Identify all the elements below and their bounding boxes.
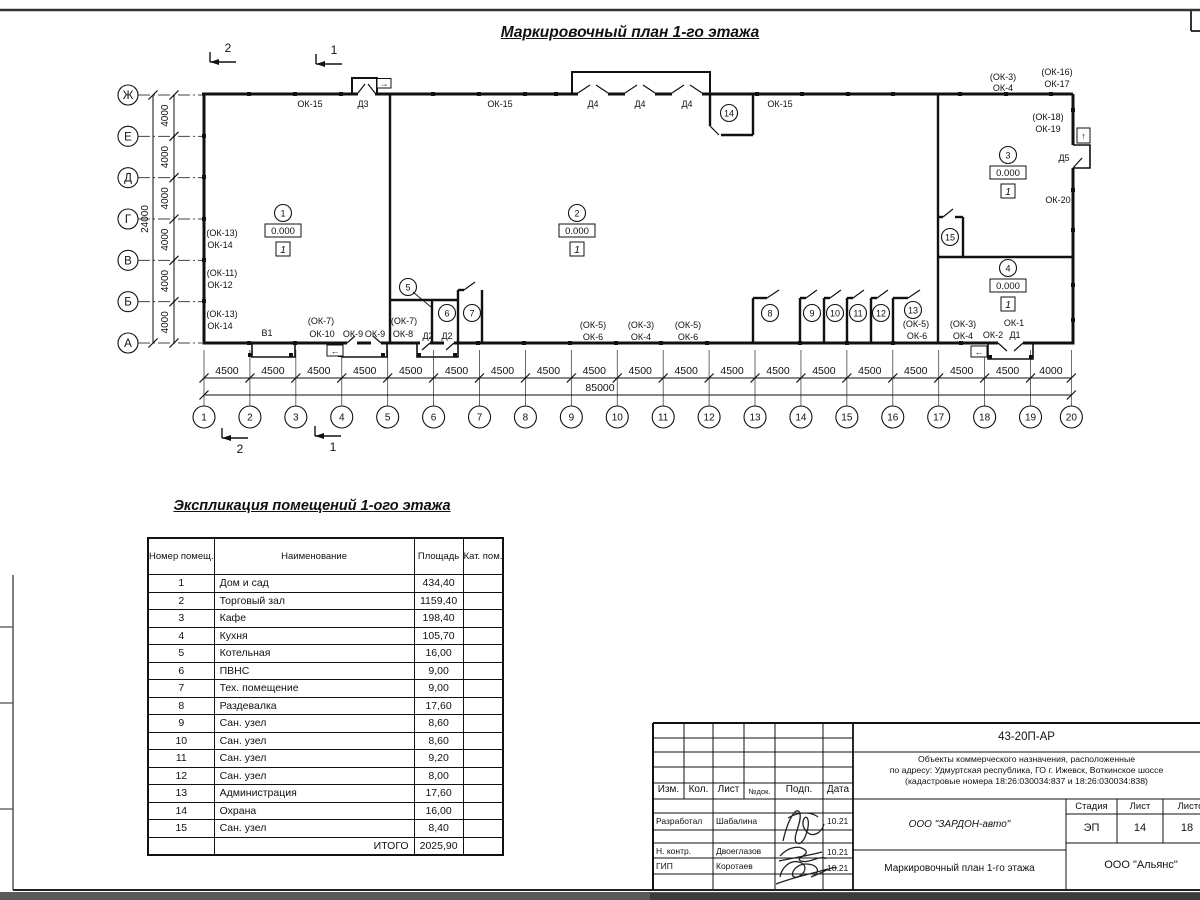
wall-label: Д4 [587, 99, 598, 109]
finish-type: 1 [1005, 186, 1011, 198]
stamp-col-list: Лист [713, 784, 744, 795]
door-leaf [358, 84, 365, 93]
axis-letter: Ж [123, 90, 134, 102]
door-leaf [596, 85, 608, 93]
column-number: 20 [1066, 413, 1078, 424]
stamp-sheet-label: Лист [1117, 801, 1163, 812]
axis-gap-dim: 4000 [160, 187, 171, 210]
window-tick [1049, 92, 1053, 96]
column-number: 6 [431, 413, 437, 424]
section-arrow [222, 435, 231, 441]
column-gap-dim: 4500 [858, 365, 882, 377]
axis-gap-dim: 4000 [160, 269, 171, 292]
wall-label: (ОК-16) [1041, 67, 1072, 77]
column-number: 11 [658, 413, 669, 424]
stamp-col-izm: Изм. [653, 784, 684, 795]
wall-label: ОК-19 [1035, 124, 1060, 134]
door-leaf [672, 85, 684, 93]
finish-type: 1 [574, 244, 580, 256]
door-leaf [368, 84, 375, 93]
finish-type: 1 [1005, 299, 1011, 311]
wall-label: ОК-8 [393, 329, 413, 339]
axis-gap-dim: 4000 [160, 104, 171, 127]
table-row: 8Раздевалка17,60 [148, 697, 503, 715]
stamp-doc-code: 43-20П-АР [853, 731, 1200, 743]
elevation-value: 0.000 [996, 168, 1020, 179]
room-number: 3 [1005, 150, 1010, 160]
stamp-sheet-value: 14 [1117, 822, 1163, 834]
room-number: 5 [405, 282, 410, 292]
door-leaf [578, 85, 590, 93]
wall-label: (ОК-5) [903, 319, 929, 329]
column-number: 12 [704, 413, 716, 424]
table-total-row: ИТОГО2025,90 [148, 837, 503, 855]
room-number: 10 [830, 308, 840, 318]
window-tick [846, 92, 850, 96]
stamp-date-gip: 10.21 [827, 863, 853, 873]
wall-label: ОК-14 [207, 321, 232, 331]
stamp-role-ncontr: Н. контр. [656, 846, 712, 856]
exit-arrow-left-icon: ← [975, 347, 984, 357]
stamp-col-ndok: №док. [744, 787, 775, 796]
signature-ncontr [779, 847, 826, 861]
window-tick [1029, 355, 1033, 359]
window-tick [1071, 108, 1075, 112]
table-row: 15Сан. узел8,40 [148, 820, 503, 838]
table-row: 3Кафе198,40 [148, 610, 503, 628]
wall-label: Д4 [681, 99, 692, 109]
window-tick [755, 92, 759, 96]
stamp-stage-value: ЭП [1066, 822, 1117, 834]
door-leaf [710, 126, 719, 135]
stamp-role-gip: ГИП [656, 861, 712, 871]
column-gap-dim: 4000 [1039, 365, 1063, 377]
wall-label: (ОК-5) [675, 320, 701, 330]
wall-label: (ОК-3) [990, 72, 1016, 82]
explication-table: Номер помещ. Наименование Площадь Кат. п… [147, 537, 504, 856]
column-total-dim: 85000 [585, 382, 614, 394]
window-tick [202, 299, 206, 303]
wall-label: Д2 [441, 331, 452, 341]
column-gap-dim: 4500 [537, 365, 561, 377]
wall-label: ОК-20 [1045, 195, 1070, 205]
stamp-date-ncontr: 10.21 [827, 847, 853, 857]
column-number: 8 [523, 413, 529, 424]
section-number: 1 [331, 43, 338, 57]
wall-label: В1 [261, 328, 272, 338]
wall-label: (ОК-3) [628, 320, 654, 330]
column-gap-dim: 4500 [261, 365, 285, 377]
stamp-name-developer: Шабалина [716, 816, 774, 826]
column-number: 4 [339, 413, 345, 424]
drawing-sheet: ЖЕДГВБА400040004000400040004000240001234… [0, 0, 1200, 900]
col-header-number: Номер помещ. [148, 538, 214, 575]
stamp-name-ncontr: Двоеглазов [716, 846, 774, 856]
column-number: 2 [247, 413, 253, 424]
window-tick [453, 353, 457, 357]
wall-label: (ОК-3) [950, 319, 976, 329]
column-gap-dim: 4500 [950, 365, 974, 377]
section-number: 1 [330, 440, 337, 454]
door-leaf [806, 290, 817, 298]
window-tick [339, 92, 343, 96]
column-number: 14 [795, 413, 807, 424]
column-gap-dim: 4500 [307, 365, 331, 377]
column-number: 13 [749, 413, 761, 424]
window-tick [988, 355, 992, 359]
elevation-value: 0.000 [565, 226, 589, 237]
wall-label: ОК-9 [343, 329, 363, 339]
stamp-org-customer: ООО "Альянс" [1066, 859, 1200, 871]
door-leaf [877, 290, 888, 298]
axis-letter: Б [124, 297, 132, 309]
stamp-address-line2: по адресу: Удмуртская республика, ГО г. … [853, 765, 1200, 775]
window-tick [891, 341, 895, 345]
wall-label: Д4 [634, 99, 645, 109]
axis-letter: А [124, 338, 132, 350]
table-row: 13Администрация17,60 [148, 785, 503, 803]
stamp-role-developer: Разработал [656, 816, 712, 826]
section-number: 2 [237, 442, 244, 456]
wall-label: Д1 [1009, 330, 1020, 340]
col-header-category: Кат. пом. [463, 538, 503, 575]
wall-label: ОК-12 [207, 280, 232, 290]
column-number: 15 [841, 413, 853, 424]
window-tick [293, 92, 297, 96]
stamp-col-data: Дата [823, 784, 853, 795]
wall-label: ОК-9 [365, 329, 385, 339]
section-arrow [315, 433, 324, 439]
wall-label: ОК-1 [1004, 318, 1024, 328]
column-gap-dim: 4500 [996, 365, 1020, 377]
door-leaf [446, 343, 454, 350]
door-leaf [1014, 343, 1023, 351]
section-arrow [316, 61, 325, 67]
window-tick [659, 341, 663, 345]
table-row: 11Сан. узел9,20 [148, 750, 503, 768]
window-tick [568, 341, 572, 345]
table-row: 6ПВНС9,00 [148, 662, 503, 680]
axis-letter: Г [125, 214, 132, 226]
door-leaf [643, 85, 655, 93]
explication-title: Экспликация помещений 1-ого этажа [172, 498, 452, 514]
room-number: 8 [767, 308, 772, 318]
plan-title: Маркировочный план 1-го этажа [440, 24, 820, 42]
wall-label: ОК-17 [1044, 79, 1069, 89]
col-header-name: Наименование [214, 538, 414, 575]
axis-letter: В [124, 255, 132, 267]
window-tick [476, 341, 480, 345]
exit-arrow-left-icon: ← [331, 346, 340, 356]
porch-d2 [417, 344, 458, 357]
window-tick [845, 341, 849, 345]
column-gap-dim: 4500 [445, 365, 469, 377]
door-leaf [830, 290, 841, 298]
wall-label: ОК-4 [631, 332, 651, 342]
window-tick [959, 341, 963, 345]
column-number: 17 [933, 413, 945, 424]
window-tick [523, 92, 527, 96]
exit-arrow-up-icon: ↑ [1081, 131, 1086, 141]
wall-label: ОК-6 [907, 331, 927, 341]
room-number: 6 [444, 308, 449, 318]
room-number: 1 [280, 208, 285, 218]
window-tick [554, 92, 558, 96]
window-tick [522, 341, 526, 345]
column-gap-dim: 4500 [629, 365, 653, 377]
window-tick [477, 92, 481, 96]
door-leaf [943, 209, 953, 217]
window-tick [202, 134, 206, 138]
window-tick [202, 217, 206, 221]
column-number: 5 [385, 413, 391, 424]
window-tick [800, 92, 804, 96]
wall-label: ОК-15 [767, 99, 792, 109]
section-number: 2 [225, 41, 232, 55]
column-number: 16 [887, 413, 899, 424]
window-tick [289, 353, 293, 357]
wall-label: ОК-15 [297, 99, 322, 109]
window-tick [891, 92, 895, 96]
stamp-col-podp: Подп. [775, 784, 823, 795]
porch-d1 [988, 344, 1033, 359]
wall-label: (ОК-7) [308, 316, 334, 326]
wall-label: (ОК-13) [206, 309, 237, 319]
column-gap-dim: 4500 [399, 365, 423, 377]
window-tick [958, 92, 962, 96]
column-gap-dim: 4500 [491, 365, 515, 377]
stamp-name-gip: Коротаев [716, 861, 774, 871]
door-leaf [998, 343, 1007, 351]
axis-total-dim: 24000 [140, 205, 151, 233]
window-tick [1071, 283, 1075, 287]
wall-label: Д2 [422, 331, 433, 341]
wall-label: Д5 [1058, 153, 1069, 163]
table-row: 10Сан. узел8,60 [148, 732, 503, 750]
stamp-doc-title: Маркировочный план 1-го этажа [853, 863, 1066, 874]
table-row: 5Котельная16,00 [148, 645, 503, 663]
room-number: 9 [809, 308, 814, 318]
table-row: 9Сан. узел8,60 [148, 715, 503, 733]
elevation-value: 0.000 [996, 281, 1020, 292]
column-gap-dim: 4500 [215, 365, 239, 377]
door-leaf [690, 85, 702, 93]
door-leaf [1073, 158, 1082, 168]
axis-gap-dim: 4000 [160, 145, 171, 168]
room-number: 4 [1005, 263, 1010, 273]
wall-label: (ОК-11) [207, 268, 238, 278]
axis-gap-dim: 4000 [160, 311, 171, 334]
stamp-org-developer: ООО "ЗАРДОН-авто" [853, 819, 1066, 830]
column-number: 1 [201, 413, 207, 424]
wall-label: ОК-6 [583, 332, 603, 342]
room-number: 7 [469, 308, 474, 318]
window-tick [798, 341, 802, 345]
window-tick [247, 92, 251, 96]
wall-label: ОК-10 [309, 329, 334, 339]
window-tick [1071, 228, 1075, 232]
wall-label: ОК-4 [953, 331, 973, 341]
column-gap-dim: 4500 [720, 365, 744, 377]
column-gap-dim: 4500 [353, 365, 377, 377]
column-number: 18 [979, 413, 991, 424]
room-number: 2 [574, 208, 579, 218]
column-gap-dim: 4500 [904, 365, 928, 377]
table-row: 1Дом и сад434,40 [148, 575, 503, 593]
stamp-address-line3: (кадастровые номера 18:26:030034:837 и 1… [853, 776, 1200, 786]
wall-label: (ОК-7) [391, 316, 417, 326]
table-row: 7Тех. помещение9,00 [148, 680, 503, 698]
room-number: 14 [724, 108, 734, 118]
room-number: 15 [945, 232, 955, 242]
stamp-date-developer: 10.21 [827, 816, 853, 826]
signature-developer [783, 811, 824, 844]
wall-label: ОК-2 [983, 330, 1003, 340]
wall-label: (ОК-13) [206, 228, 237, 238]
window-tick [417, 353, 421, 357]
window-tick [705, 341, 709, 345]
door-leaf [853, 290, 864, 298]
axis-letter: Д [124, 173, 132, 185]
wall-label: ОК-6 [678, 332, 698, 342]
exit-arrow-right-icon: → [380, 79, 389, 89]
column-gap-dim: 4500 [583, 365, 607, 377]
table-row: 12Сан. узел8,00 [148, 767, 503, 785]
room-number: 12 [876, 308, 886, 318]
column-number: 7 [477, 413, 483, 424]
window-tick [248, 353, 252, 357]
wall-label: (ОК-5) [580, 320, 606, 330]
table-row: 4Кухня105,70 [148, 627, 503, 645]
window-tick [1071, 318, 1075, 322]
finish-type: 1 [280, 244, 286, 256]
window-tick [381, 353, 385, 357]
wall-label: (ОК-18) [1032, 112, 1063, 122]
window-tick [614, 341, 618, 345]
door-leaf [908, 290, 920, 298]
door-leaf [625, 85, 637, 93]
table-row: 14Охрана16,00 [148, 802, 503, 820]
column-gap-dim: 4500 [674, 365, 698, 377]
vestibule-entry [572, 72, 710, 94]
stamp-sheets-label: Листов [1163, 801, 1200, 812]
axis-gap-dim: 4000 [160, 228, 171, 251]
column-gap-dim: 4500 [812, 365, 836, 377]
column-number: 10 [612, 413, 624, 424]
porch-ok9 [342, 344, 387, 357]
wall-label: ОК-15 [487, 99, 512, 109]
table-row: 2Торговый зал1159,40 [148, 592, 503, 610]
window-tick [202, 175, 206, 179]
wall-label: ОК-4 [993, 83, 1013, 93]
window-tick [431, 92, 435, 96]
axis-letter: Е [124, 131, 132, 143]
wall-label: ОК-14 [207, 240, 232, 250]
elevation-value: 0.000 [271, 226, 295, 237]
col-header-area: Площадь [414, 538, 463, 575]
scan-edge-bar [650, 893, 1200, 900]
porch-v1 [252, 344, 295, 357]
stamp-address-line1: Объекты коммерческого назначения, распол… [853, 754, 1200, 764]
stamp-stage-label: Стадия [1066, 801, 1117, 812]
wall-label: Д3 [357, 99, 368, 109]
column-number: 9 [569, 413, 575, 424]
room-number: 13 [908, 305, 918, 315]
stamp-sheets-value: 18 [1163, 822, 1200, 834]
section-arrow [210, 59, 219, 65]
window-tick [202, 258, 206, 262]
column-gap-dim: 4500 [766, 365, 790, 377]
window-tick [293, 341, 297, 345]
room-number: 11 [853, 308, 862, 318]
door-leaf [422, 343, 430, 350]
window-tick [247, 341, 251, 345]
column-number: 19 [1025, 413, 1037, 424]
door-leaf [767, 290, 779, 298]
stamp-col-kol: Кол. [684, 784, 713, 795]
door-leaf [464, 282, 475, 290]
column-number: 3 [293, 413, 299, 424]
window-tick [1071, 188, 1075, 192]
